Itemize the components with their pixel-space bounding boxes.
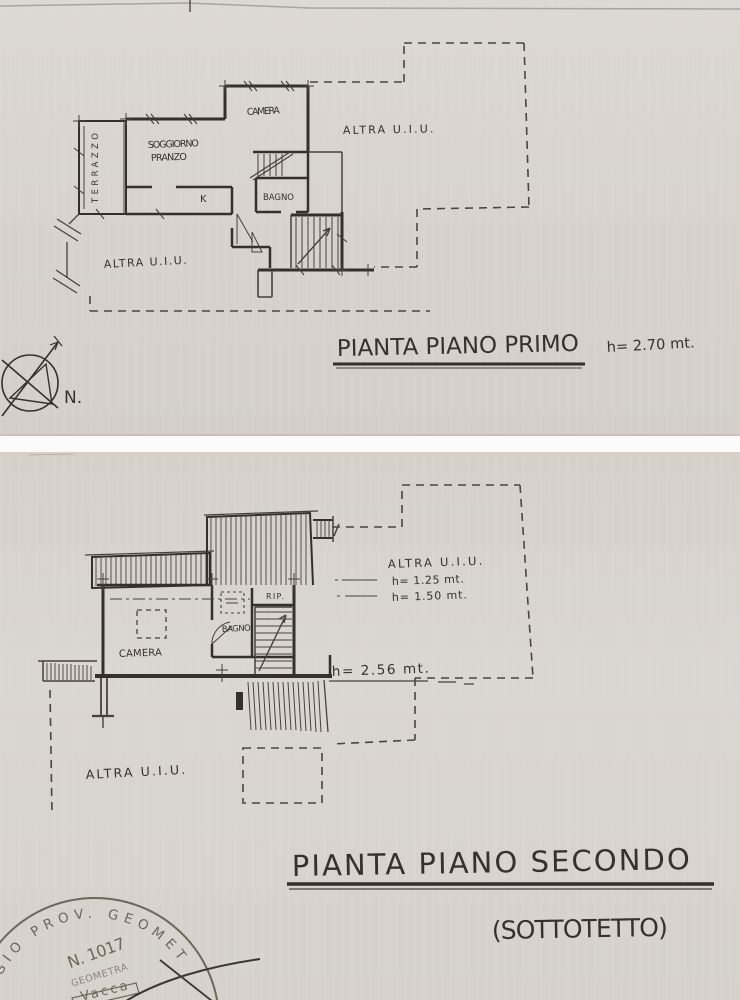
- compass-north-label: N.: [64, 388, 82, 408]
- scanned-floor-plan-document: N. TERRAZZO SOGGIORNO PRANZO CAMERA K BA…: [0, 0, 740, 1000]
- room-label-bagno-p1: BAGNO: [263, 193, 294, 203]
- page-edge-line: [0, 0, 740, 12]
- first-floor-title: PIANTA PIANO PRIMO: [337, 331, 581, 362]
- second-floor-title: PIANTA PIANO SECONDO: [292, 842, 693, 883]
- scan-artifact: [28, 454, 74, 455]
- fixtures: [97, 573, 300, 682]
- first-floor-height-note: h= 2.70 mt.: [606, 335, 695, 356]
- second-floor-plan-drawing: ALTRA U.I.U. h= 1.25 mt. h= 1.50 mt. h= …: [0, 452, 740, 1000]
- height-note-low: h= 1.25 mt.: [392, 572, 464, 588]
- first-floor-plan-drawing: N. TERRAZZO SOGGIORNO PRANZO CAMERA K BA…: [0, 0, 740, 436]
- height-note-mid: h= 1.50 mt.: [392, 588, 467, 604]
- room-label-terrazzo: TERRAZZO: [91, 133, 101, 204]
- room-label-pranzo: PRANZO: [151, 152, 187, 164]
- adjacent-unit-label-right-p2: ALTRA U.I.U.: [388, 554, 484, 571]
- stairs-second-floor: [255, 607, 292, 674]
- caption-first-floor: PIANTA PIANO PRIMO h= 2.70 mt.: [333, 331, 695, 368]
- adjacent-unit-label-right-p1: ALTRA U.I.U.: [343, 122, 435, 137]
- adjacent-unit-label-bottom-p1: ALTRA U.I.U.: [103, 254, 188, 271]
- adjacent-unit-label-bottom-p2: ALTRA U.I.U.: [85, 762, 187, 782]
- room-label-rip: RIP.: [266, 592, 284, 601]
- compass-rose-icon: [2, 336, 62, 416]
- room-label-camera-p1: CAMERA: [247, 105, 281, 118]
- room-label-bagno-p2: BAGNO: [222, 623, 252, 635]
- caption-second-floor: PIANTA PIANO SECONDO (SOTTOTETTO): [287, 842, 714, 945]
- scan-divider: [0, 436, 740, 452]
- room-label-k: K: [200, 194, 207, 205]
- second-floor-scan: ALTRA U.I.U. h= 1.25 mt. h= 1.50 mt. h= …: [0, 452, 740, 1000]
- second-floor-subtitle: (SOTTOTETTO): [492, 913, 668, 945]
- room-label-soggiorno: SOGGIORNO: [148, 138, 199, 151]
- signature-stroke: [126, 959, 260, 1000]
- stairs-first-floor: [250, 152, 338, 268]
- corner-ticks: [73, 80, 368, 276]
- room-label-camera-p2: CAMERA: [119, 647, 164, 660]
- first-floor-scan: N. TERRAZZO SOGGIORNO PRANZO CAMERA K BA…: [0, 0, 740, 436]
- height-note-ridge: h= 2.56 mt.: [332, 661, 429, 680]
- surveyor-stamp: EGIO PROV. GEOMET N. 1017 GEOMETRA Vacca: [0, 898, 260, 1000]
